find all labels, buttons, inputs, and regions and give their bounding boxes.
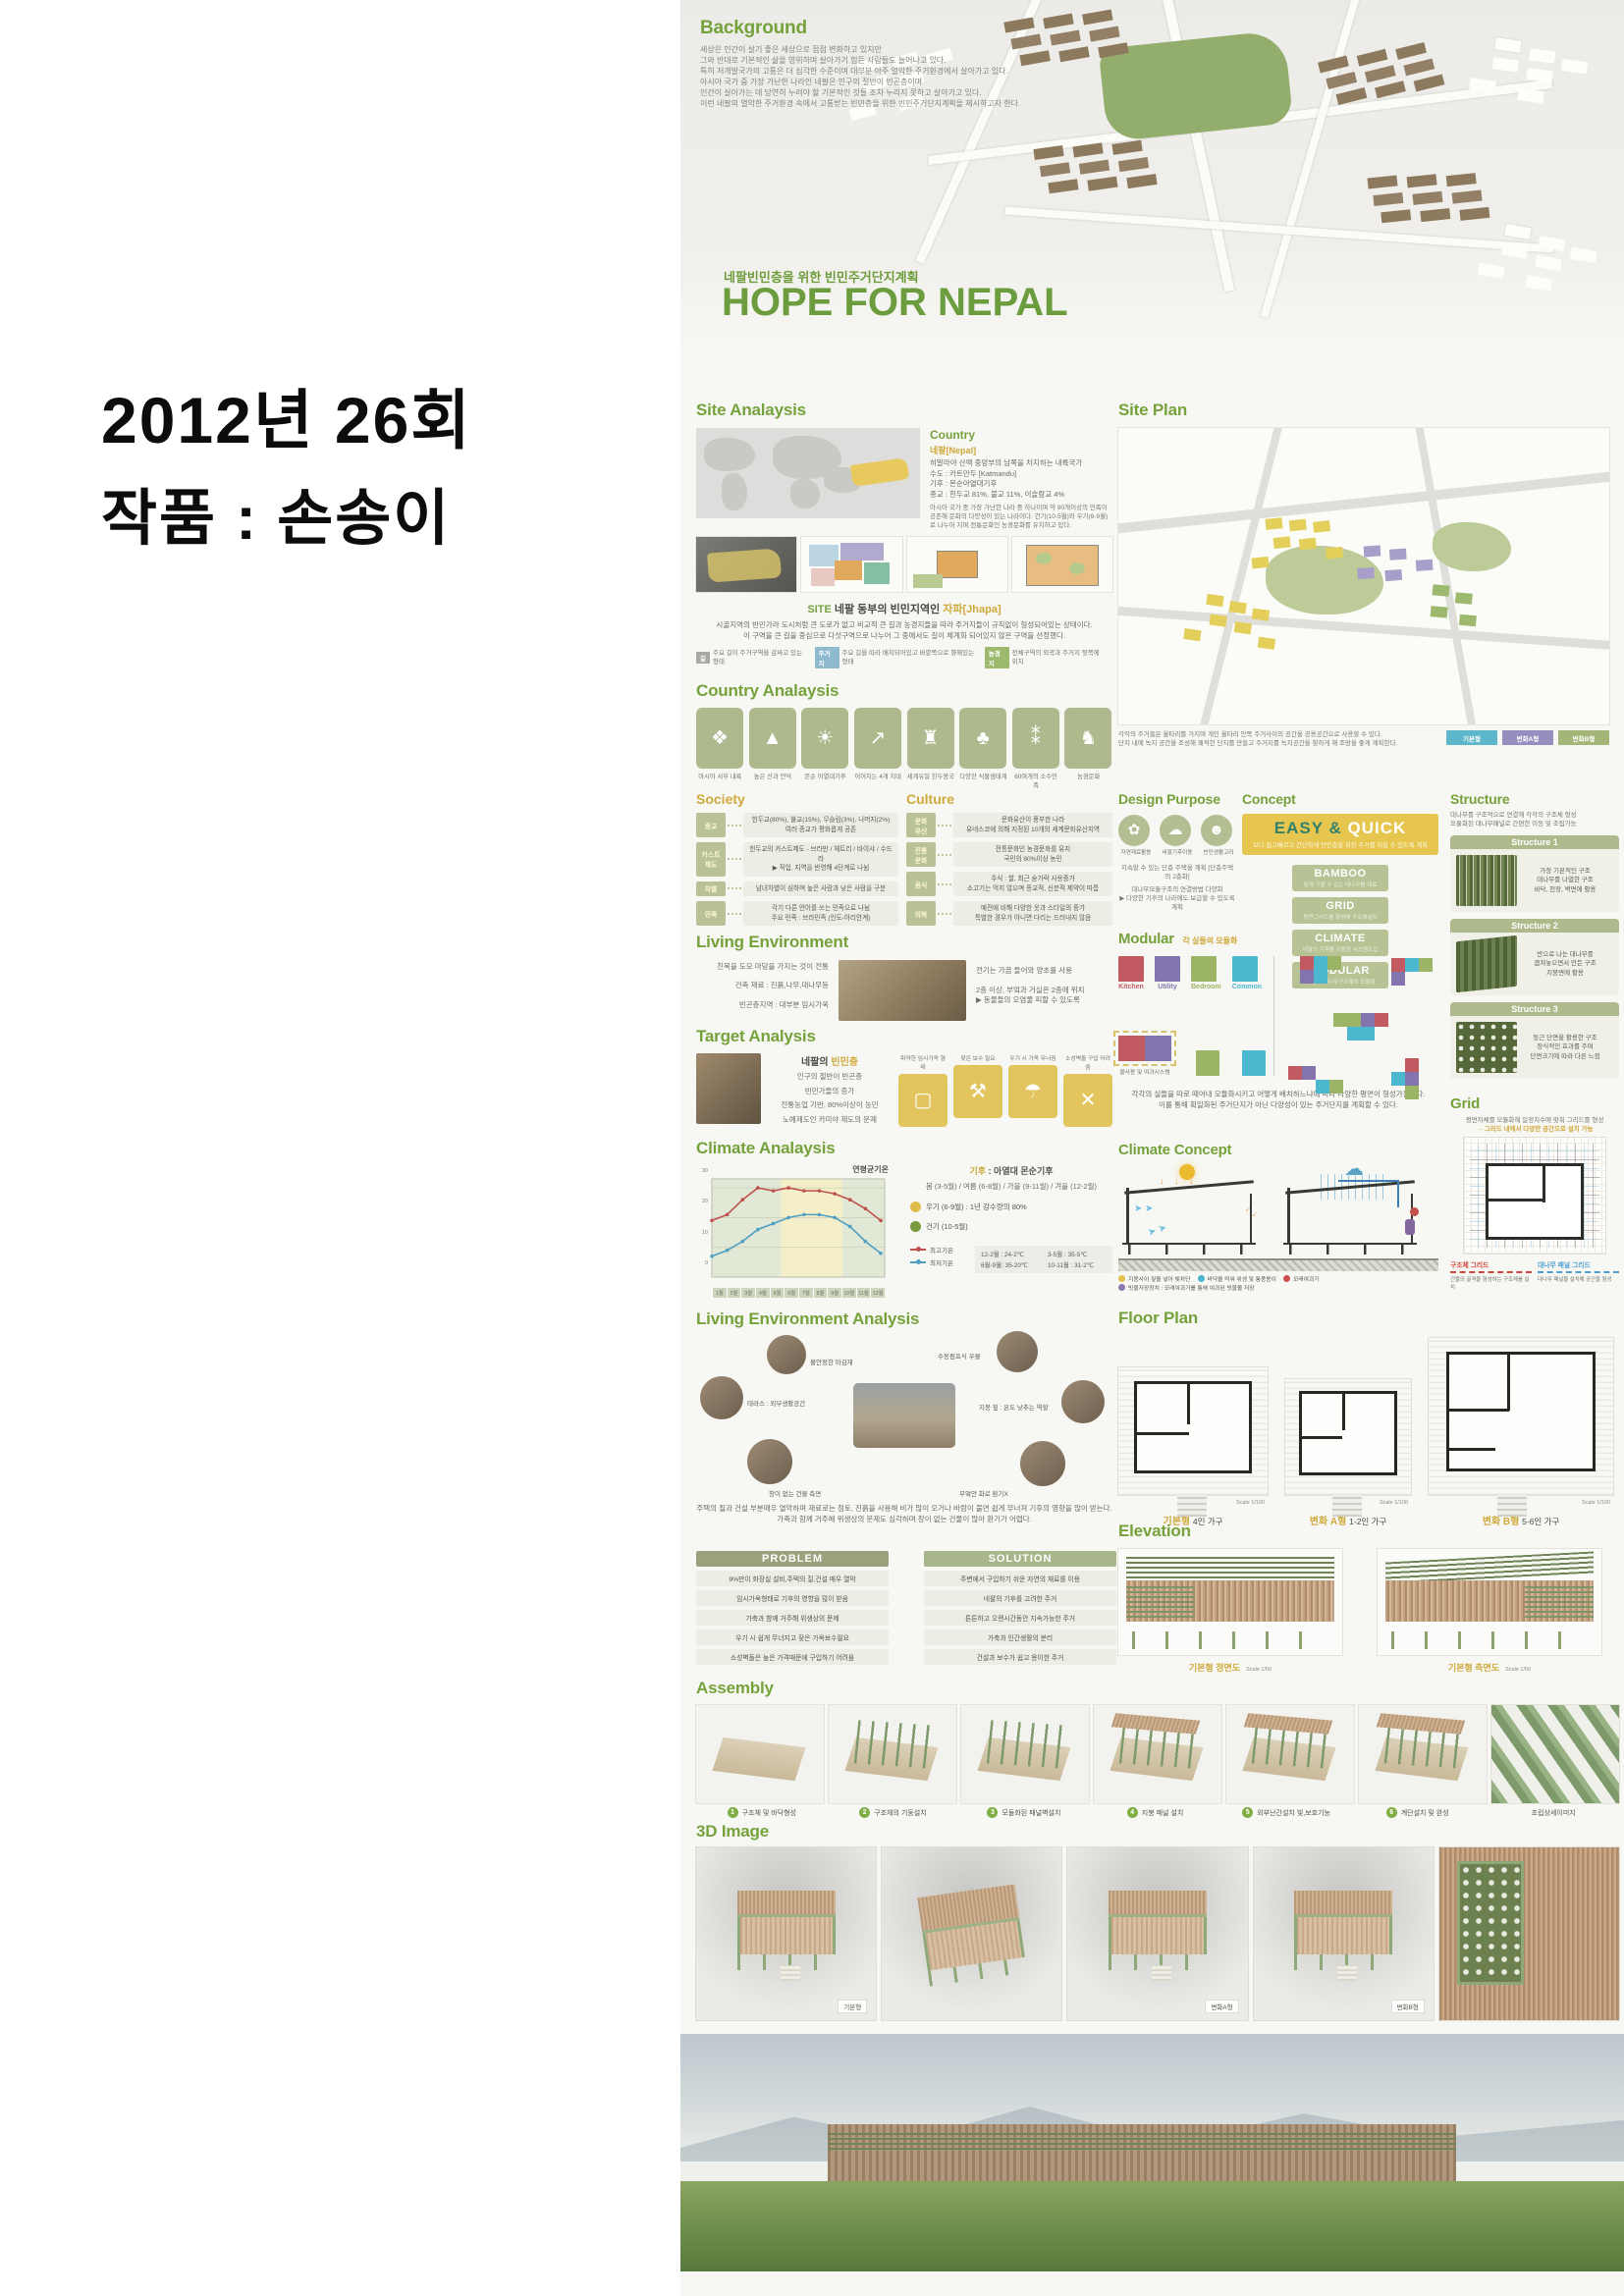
structure-heading: Structure <box>1450 791 1619 807</box>
structure-box-3-text: 둥근 단면을 활용한 구조 장식적인 효과를 주며 단면크기에 따라 다른 느낌 <box>1517 1034 1613 1062</box>
elevation-section: Elevation 기본형 정면도Scale 1/50 기본형 측면도Scale… <box>1118 1522 1619 1674</box>
variant-b-houses <box>1433 584 1450 596</box>
country-info: Country 네팔[Nepal] 히말라야 산맥 중앙부의 남쪽을 차지하는 … <box>920 428 1112 530</box>
poor-life-icon: ☻ <box>1201 815 1232 846</box>
country-analysis-item: ☀ 몬순 아열대기후 <box>801 708 849 789</box>
assembly-step-label: 모듈화된 패널벽설치 <box>1001 1808 1060 1818</box>
windowless-photo <box>747 1439 792 1484</box>
concept-box: GRID 평면그리드를 형성해 구조체설치 <box>1292 897 1388 924</box>
design-purpose-section: Design Purpose ✿ 자연재료활용 ☁ 네팔기후이용 ☻ 빈민생활고… <box>1118 791 1236 912</box>
ethnic-groups-icon: ⁑ <box>1012 708 1059 769</box>
roof-view-render <box>882 1847 1061 2020</box>
final-render-photo <box>680 2034 1624 2271</box>
living-env-analysis-diagram: 불안정한 마감재 테라스 : 외부생활공간 창이 없는 건물 측면 수동펌프식 … <box>696 1329 1112 1496</box>
legend-dot <box>1118 1284 1125 1291</box>
gutter-pipe <box>1338 1180 1399 1207</box>
target-analysis-list: 네팔의 빈민층 인구의 절반이 빈곤층빈민가들의 증가전통농업 기반, 80%이… <box>761 1053 898 1127</box>
assembly-step-label: 지붕 패널 설치 <box>1142 1808 1184 1818</box>
design-purpose-item: ☻ 빈민생활고려 <box>1201 815 1236 856</box>
room-label: Bedroom <box>1191 984 1221 990</box>
background-line: 세상은 인간이 살기 좋은 세상으로 점점 변화하고 있지만 <box>700 44 1024 55</box>
site-plan-caption: 각각의 주거들은 울타리를 가지며 개인 울타리 안쪽 주거사이의 공간을 공용… <box>1118 730 1441 748</box>
assembly-step-number: 3 <box>987 1807 998 1818</box>
concept-box: BAMBOO 쉽게 구할 수 있는 대나무를 재료 <box>1292 865 1388 891</box>
living-env-analysis-section: Living Environment Analysis 불안정한 마감재 테라스… <box>696 1309 1112 1547</box>
target-tile-label: 잦은 보수 필요 <box>953 1053 1002 1062</box>
three-d-section: 3D Image 기본형 변화A형 변화B형 <box>696 1822 1619 2020</box>
month-tick: 10월 <box>841 1288 856 1298</box>
bamboo-panel-image <box>1456 855 1517 906</box>
basic-type-houses <box>1265 517 1282 530</box>
legend-text: 주요 길이 주거구역을 감싸고 있는 형태 <box>713 649 809 667</box>
plan-stairs <box>1332 1495 1362 1517</box>
render-park <box>1099 29 1294 141</box>
rainy-collapse-icon: ☂ <box>1008 1065 1057 1118</box>
country-analysis-label: 아시아 서부 내륙 <box>696 772 744 780</box>
country-analysis-label: 농경문화 <box>1064 772 1112 780</box>
month-tick: 1월 <box>712 1288 727 1298</box>
target-tile: 소성벽돌 구입 어려움 ✕ <box>1063 1053 1112 1127</box>
culture-text: 예전에 비해 다양한 옷과 스타일의 증가 특별한 경우가 아니면 다리는 드러… <box>953 901 1112 926</box>
month-tick: 6월 <box>784 1288 798 1298</box>
site-title: 네팔 동부의 빈민지역인 <box>835 604 940 615</box>
modular-heading: Modular <box>1118 931 1174 947</box>
zone-detail-thumb <box>1012 537 1112 592</box>
structure-box-2-title: Structure 2 <box>1450 919 1619 933</box>
variant-b-plan-drawing: Scale 1/100 <box>1429 1338 1613 1495</box>
room-swatch <box>1118 956 1144 982</box>
floor-plan-row: Scale 1/100 기본형 4인 가구 Scale 1/100 변화 A형 … <box>1118 1338 1619 1527</box>
target-tile: 잦은 보수 필요 ⚒ <box>953 1053 1002 1127</box>
society-text: 힌두교(80%), 불교(15%), 무슬림(3%), 나머지(2%) 여러 종… <box>743 813 898 837</box>
legend-dot <box>1198 1275 1205 1282</box>
structure-box-3: Structure 3 둥근 단면을 활용한 구조 장식적인 효과를 주며 단면… <box>1450 1002 1619 1079</box>
assembly-captions: 1 구조체 및 바닥형성 2 구조체의 기둥설치 3 모듈화된 패널벽설치 4 … <box>696 1807 1619 1818</box>
world-map-image <box>696 428 920 518</box>
legend-text: 주요 길을 따라 배치되어있고 바깥쪽으로 향해있는 형태 <box>842 649 979 667</box>
target-item: 노예제도인 카미야 제도의 문제 <box>767 1115 893 1126</box>
temperature-cell: 6월-9월: 35-20℃ <box>981 1260 1040 1269</box>
assembly-step5-image <box>1226 1705 1354 1803</box>
structure-section: Structure 대나무를 구조적으로 연결해 각각의 구조체 형성 모듈화된… <box>1450 791 1619 1079</box>
modular-caption: 각각의 실들을 따로 떼어내 모듈화시키고 어떻게 배치하느냐에 따라 다양한 … <box>1118 1090 1438 1110</box>
climate-analysis-section: Climate Analaysis 연평균기온 30 20 10 0 1월2월3… <box>696 1139 1112 1298</box>
country-analysis-label: 세계유일 힌두왕국 <box>907 772 955 780</box>
target-tile: 취약한 임시가옥 형태 ▢ <box>898 1053 947 1127</box>
three-d-heading: 3D Image <box>696 1822 1619 1842</box>
solution-item: 주변에서 구입하기 쉬운 자연의 재료를 이용 <box>924 1571 1116 1586</box>
temperature-cell: 12-2월 : 24-2℃ <box>981 1250 1040 1258</box>
structure-intro: 대나무를 구조적으로 연결해 각각의 구조체 형성 모듈화된 대나무패널로 간편… <box>1450 811 1619 828</box>
site-analysis-heading: Site Analaysis <box>696 400 1112 420</box>
temperature-cell: 10-11월 : 31-2℃ <box>1048 1260 1107 1269</box>
target-analysis-section: Target Analysis 네팔의 빈민층 인구의 절반이 빈곤층빈민가들의… <box>696 1027 1112 1127</box>
basic-type-houses <box>1206 594 1223 607</box>
country-analysis-item: ❖ 아시아 서부 내륙 <box>696 708 744 789</box>
problem-header: PROBLEM <box>696 1551 889 1567</box>
modular-body: Kitchen Utility Bedroom Common <box>1118 956 1438 1076</box>
site-map-thumbnails <box>696 537 1112 592</box>
wind-arrows: ➤ ➤ <box>1134 1203 1154 1214</box>
problem-item: 9%만이 화장실 설비,주택의 질,건설 매우 열악 <box>696 1571 889 1586</box>
living-environment-section: Living Environment 친목을 도모 마당을 가지는 것이 전통건… <box>696 933 1112 1021</box>
grid-line1: 평면자체를 모듈화해 일정치수에 맞춰 그리드를 형성 <box>1450 1116 1619 1125</box>
repair-hammer-icon: ⚒ <box>953 1065 1002 1118</box>
country-analysis-label: 높은 산과 언덕 <box>749 772 797 780</box>
straw-roof-photo <box>1061 1380 1105 1423</box>
concept-banner: EASY & QUICK 보다 쉽고빠르고 간단하게 빈민층을 위한 주거를 지… <box>1242 814 1438 855</box>
assembly-step-caption: 2 구조체의 기둥설치 <box>828 1807 959 1818</box>
design-purpose-item: ☁ 네팔기후이용 <box>1160 815 1195 856</box>
sunlight-arrows: ↓↓ <box>1244 1203 1263 1222</box>
culture-text: 전통문화인 농경문화를 유지 국민의 80%이상 농민 <box>953 842 1112 867</box>
design-purpose-line1: 지속할 수 있는 단층 주택을 계획 [단층주택의 2층화] <box>1118 864 1236 881</box>
room-label: Kitchen <box>1118 984 1144 990</box>
structure-box-3-title: Structure 3 <box>1450 1002 1619 1016</box>
modular-room: Bedroom <box>1191 956 1221 990</box>
plant-ecosystem-icon: ♣ <box>959 708 1006 769</box>
ground-strip <box>1118 1258 1438 1271</box>
elevation-heading: Elevation <box>1118 1522 1619 1541</box>
design-purpose-item: ✿ 자연재료활용 <box>1118 815 1154 856</box>
slum-people-photo <box>696 1053 761 1124</box>
grid-legend-panel: 대나무 패널 그리드 대나무 패널을 설치해 공간을 형성 <box>1538 1259 1619 1291</box>
chart-legend: 최고기온 최저기온 <box>910 1242 975 1267</box>
solution-header: SOLUTION <box>924 1551 1116 1567</box>
competition-title-line1: 2012년 26회 <box>101 381 651 459</box>
climate-concept-legend: 지붕사이 짚을 넣어 빛차단 바닥을 띄워 위생 및 통풍용이 모래여과기 빗물… <box>1118 1274 1438 1292</box>
solution-item: 네팔의 기후를 고려한 주거 <box>924 1590 1116 1606</box>
structure-box-1-title: Structure 1 <box>1450 835 1619 849</box>
climate-concept-legend-item: 바닥을 띄워 위생 및 통풍용이 <box>1198 1274 1276 1283</box>
solution-column: SOLUTION 주변에서 구입하기 쉬운 자연의 재료를 이용네팔의 기후를 … <box>924 1551 1116 1665</box>
month-tick: 7월 <box>798 1288 813 1298</box>
site-plan-legend: 기본형변화A형변화B형 <box>1441 730 1609 745</box>
grid-heading: Grid <box>1450 1095 1619 1112</box>
country-analysis-tiles: ❖ 아시아 서부 내륙 ▲ 높은 산과 언덕 ☀ 몬순 아열대기후 ↗ 이어지는… <box>696 708 1112 789</box>
living-env-analysis-heading: Living Environment Analysis <box>696 1309 1112 1329</box>
country-analysis-item: ↗ 이어지는 4개 지대 <box>854 708 902 789</box>
background-line: 이런 네팔의 열악한 주거환경 속에서 고통받는 빈민층을 위한 빈민주거단지계… <box>700 98 1024 109</box>
target-item: 빈민가들의 증가 <box>767 1087 893 1097</box>
site-desc2: 이 구역을 큰 길을 중심으로 다섯구역으로 나누어 그 중에서도 길이 체계화… <box>696 631 1112 642</box>
modular-room: Utility <box>1155 956 1180 990</box>
variant-b-render: 변화B형 <box>1254 1847 1434 2020</box>
legend-dot <box>1118 1275 1125 1282</box>
site-name: 자파[Jhapa] <box>943 604 1001 615</box>
culture-row: 음식 주식 : 쌀, 최근 숟가락 사용증가 소고기는 먹지 않으며 종교적, … <box>906 872 1112 896</box>
month-tick: 5월 <box>770 1288 785 1298</box>
structure-box-1-text: 가장 기본적인 구조 대나무를 나열한 구조 바닥, 천장, 벽면에 활용 <box>1517 867 1613 895</box>
render-label: 변화A형 <box>1206 2001 1237 2012</box>
site-legend-item: 길 주요 길이 주거구역을 감싸고 있는 형태 <box>696 649 809 667</box>
assembly-extra-caption: 조립상세이미지 <box>1488 1807 1619 1818</box>
concept-box-name: GRID <box>1294 900 1386 912</box>
country-analysis-item: ♞ 농경문화 <box>1064 708 1112 789</box>
site-analysis-top: Country 네팔[Nepal] 히말라야 산맥 중앙부의 남쪽을 차지하는 … <box>696 428 1112 530</box>
no-brick-icon: ✕ <box>1063 1074 1112 1127</box>
culture-text: 주식 : 쌀, 최근 숟가락 사용증가 소고기는 먹지 않으며 종교적, 신분적… <box>953 872 1112 896</box>
plan-stairs <box>1497 1495 1527 1517</box>
target-tile-label: 우기 시 가옥 무너짐 <box>1008 1053 1057 1062</box>
modular-rooms-block: Kitchen Utility Bedroom Common <box>1118 956 1266 1076</box>
target-item: 인구의 절반이 빈곤층 <box>767 1072 893 1083</box>
assembly-step4-image <box>1094 1705 1221 1803</box>
assembly-step-label: 외부난간설치 빛,보호기능 <box>1257 1808 1330 1818</box>
legend-chip: 주거지 <box>815 647 839 668</box>
structure-box-2: Structure 2 반으로 나눈 대나무를 겹쳐놓으면서 만든 구조 지붕면… <box>1450 919 1619 995</box>
design-purpose-line2: 대나무모듈구조의 연결방법 다양화 <box>1118 885 1236 894</box>
assembly-heading: Assembly <box>696 1679 1619 1698</box>
sand-filter <box>1410 1207 1419 1216</box>
society-text: 각기 다른 언어를 쓰는 민족으로 나뉨 주요 민족 : 브라민족 (인도-아리… <box>743 901 898 926</box>
background-block: Background 세상은 인간이 살기 좋은 세상으로 점점 변화하고 있지… <box>700 18 1024 109</box>
competition-title: 2012년 26회 작품 : 손송이 <box>101 381 651 558</box>
background-paragraph: 세상은 인간이 살기 좋은 세상으로 점점 변화하고 있지만그와 반대로 기본적… <box>700 44 1024 109</box>
assembly-images <box>696 1705 1619 1803</box>
assembly-step-label: 구조체의 기둥설치 <box>874 1808 926 1818</box>
living-environment-heading: Living Environment <box>696 933 1112 952</box>
elevation-row: 기본형 정면도Scale 1/50 기본형 측면도Scale 1/50 <box>1118 1549 1619 1674</box>
country-analysis-item: ⁑ 60여개의 소수민족 <box>1012 708 1060 789</box>
climate-analysis-heading: Climate Analaysis <box>696 1139 1112 1158</box>
society-heading: Society <box>696 791 898 807</box>
traditional-house-photo <box>839 960 966 1021</box>
concept-box-desc: 쉽게 구할 수 있는 대나무를 재료 <box>1294 881 1386 888</box>
monsoon-climate-icon: ☀ <box>801 708 848 769</box>
rainy-dot <box>910 1201 921 1212</box>
month-tick: 3월 <box>740 1288 755 1298</box>
side-elevation-drawing <box>1378 1549 1601 1655</box>
month-tick: 4월 <box>755 1288 770 1298</box>
society-text: 남녀차별이 심하며 높은 사람과 낮은 사람을 구분 <box>743 881 898 897</box>
site-plan-legend-chip: 변화A형 <box>1502 730 1553 745</box>
solution-item: 가축과 인간생활의 분리 <box>924 1629 1116 1645</box>
country-desc: 아시아 국가 중 가장 가난한 나라 중 하나이며 약 90개이상의 민족이 공… <box>930 504 1112 530</box>
assembly-step-number: 2 <box>859 1807 870 1818</box>
room-swatch <box>1191 956 1217 982</box>
site-analysis-section: Site Analaysis Country 네팔[Nepal] 히말라야 산맥… <box>696 400 1112 668</box>
target-tiles: 취약한 임시가옥 형태 ▢ 잦은 보수 필요 ⚒ 우기 시 가옥 무너짐 ☂ 소… <box>898 1053 1112 1127</box>
background-line: 특히 저개발국가의 고통은 더 심각한 수준이며 대부분 아주 열악한 주거환경… <box>700 66 1024 77</box>
country-facts: 히말라야 산맥 중앙부의 남쪽을 차지하는 내륙국가 수도 : 카트만두 [Ka… <box>930 458 1112 500</box>
water-module: 물사용 및 여과시스템 <box>1118 1036 1171 1076</box>
solution-item: 튼튼하고 오랜시간동안 지속가능한 주거 <box>924 1610 1116 1626</box>
climate-concept-legend-item: 지붕사이 짚을 넣어 빛차단 <box>1118 1274 1191 1283</box>
nepal-shape <box>850 457 909 487</box>
problem-solution-section: PROBLEM 9%만이 화장실 설비,주택의 질,건설 매우 열악임시가옥형태… <box>696 1551 1116 1665</box>
concept-box-name: BAMBOO <box>1294 868 1386 880</box>
living-environment-left: 친목을 도모 마당을 가지는 것이 전통건축 재료 : 진흙,나무,대나무등빈곤… <box>696 962 829 1020</box>
floor-plan-section: Floor Plan Scale 1/100 기본형 4인 가구 <box>1118 1308 1619 1527</box>
country-analysis-label: 60여개의 소수민족 <box>1012 772 1060 789</box>
room-swatch <box>1232 956 1258 982</box>
assembly-step-label: 구조체 및 바닥형성 <box>742 1808 796 1818</box>
target-subject: 네팔의 <box>801 1057 829 1068</box>
society-row: 카스트 제도 힌두교의 카스트제도 - 브라만 / 체트리 / 바이샤 / 수드… <box>696 842 898 877</box>
green-space <box>1433 522 1511 571</box>
month-tick: 11월 <box>856 1288 871 1298</box>
grid-line2: → 그리드 내에서 다양한 공간으로 설치 가능 <box>1450 1125 1619 1134</box>
background-line: 그와 반대로 기본적인 삶을 영위하며 살아가기 힘든 사람들도 늘어나고 있다… <box>700 55 1024 66</box>
society-tag: 카스트 제도 <box>696 842 726 877</box>
background-line: 인간이 살아가는 데 당연히 누려야 할 기본적인 것들 조차 누리지 못하고 … <box>700 87 1024 98</box>
society-rows: 종교 힌두교(80%), 불교(15%), 무슬림(3%), 나머지(2%) 여… <box>696 813 898 926</box>
natural-material-icon: ✿ <box>1118 815 1150 846</box>
living-environment-body: 친목을 도모 마당을 가지는 것이 전통건축 재료 : 진흙,나무,대나무등빈곤… <box>696 960 1112 1021</box>
culture-rows: 문화 유산 문화유산이 풍부한 나라 유네스코에 의해 지정된 10개의 세계문… <box>906 813 1112 926</box>
problem-item: 가축과 함께 거주해 위생상의 문제 <box>696 1610 889 1626</box>
floor-plan-variant-b: Scale 1/100 변화 B형 5-6인 가구 <box>1429 1338 1613 1527</box>
well-photo <box>997 1331 1038 1372</box>
culture-tag: 문화 유산 <box>906 813 936 837</box>
site-plan-section: Site Plan 각각의 주거들은 울타리를 가지며 개인 울타리 안쪽 주거… <box>1118 400 1609 748</box>
design-purpose-label: 빈민생활고려 <box>1201 848 1236 856</box>
terrace-photo <box>700 1376 743 1419</box>
modular-room: Kitchen <box>1118 956 1144 990</box>
site-plan-legend-chip: 변화B형 <box>1558 730 1609 745</box>
modular-divider <box>1273 956 1274 1076</box>
problem-item: 우기 시 쉽게 무너지고 잦은 가옥보수필요 <box>696 1629 889 1645</box>
climate-chart-block: 연평균기온 30 20 10 0 1월2월3월4월5월6월7월8월9월10월11… <box>696 1164 896 1298</box>
assembly-step-label: 계단설치 및 완성 <box>1401 1808 1449 1818</box>
society-tag: 종교 <box>696 813 726 837</box>
assembly-step-caption: 1 구조체 및 바닥형성 <box>696 1807 828 1818</box>
background-heading: Background <box>700 18 1024 39</box>
country-analysis-item: ▲ 높은 산과 언덕 <box>749 708 797 789</box>
living-environment-right: 전기는 가끔 들어와 양초를 사용2층 이상, 부엌과 거실은 2층에 위치 ▶… <box>976 966 1112 1015</box>
background-line: 아시아 국가 중 가장 가난한 나라인 네팔은 인구의 절반이 빈곤층이며 <box>700 77 1024 87</box>
design-purpose-label: 자연재료활용 <box>1118 848 1154 856</box>
site-legend-item: 주거지 주요 길을 따라 배치되어있고 바깥쪽으로 향해있는 형태 <box>815 647 979 668</box>
country-analysis-item: ♣ 다양한 식물생태계 <box>959 708 1007 789</box>
legend-min: 최저기온 <box>910 1257 975 1267</box>
climate-chart <box>696 1175 889 1283</box>
culture-row: 전통 문화 전통문화인 농경문화를 유지 국민의 80%이상 농민 <box>906 842 1112 867</box>
village-photo <box>853 1383 955 1448</box>
concept-box-desc: 평면그리드를 형성해 구조체설치 <box>1294 913 1386 921</box>
temperature-table: 12-2월 : 24-2℃3-5월 : 35-5℃6월-9월: 35-20℃10… <box>975 1246 1112 1273</box>
problem-item: 소성벽돌은 높은 가격때문에 구입하기 어려움 <box>696 1649 889 1665</box>
culture-text: 문화유산이 풍부한 나라 유네스코에 의해 지정된 10개의 세계문화유산지역 <box>953 813 1112 837</box>
target-tile-label: 소성벽돌 구입 어려움 <box>1063 1053 1112 1071</box>
concept-banner-title: EASY & QUICK <box>1244 819 1436 838</box>
assembly-step-number: 5 <box>1242 1807 1253 1818</box>
variant-a-plan-drawing: Scale 1/100 <box>1285 1379 1411 1495</box>
page: 2012년 26회 작품 : 손송이 Background <box>0 0 1624 2296</box>
assembly-step-number: 6 <box>1386 1807 1397 1818</box>
society-text: 힌두교의 카스트제도 - 브라만 / 체트리 / 바이샤 / 수드라 ▶ 직업,… <box>743 842 898 877</box>
country-analysis-label: 몬순 아열대기후 <box>801 772 849 780</box>
finish-material-photo <box>767 1335 806 1374</box>
front-elevation: 기본형 정면도Scale 1/50 <box>1118 1549 1342 1674</box>
room-swatch <box>1155 956 1180 982</box>
living-environment-item: 빈곤층지역 : 대부분 임시가옥 <box>696 1000 829 1011</box>
climate-concept-legend-item: 빗물저장장치 : 모래여과기를 통해 여과된 빗물을 저장 <box>1118 1283 1255 1292</box>
target-item: 전통농업 기반, 80%이상이 농민 <box>767 1100 893 1111</box>
target-analysis-heading: Target Analysis <box>696 1027 1112 1046</box>
month-tick: 2월 <box>727 1288 741 1298</box>
structure-box-2-text: 반으로 나눈 대나무를 겹쳐놓으면서 만든 구조 지붕면에 활용 <box>1517 950 1613 979</box>
grid-plan-image <box>1464 1138 1605 1254</box>
climate-concept-heading: Climate Concept <box>1118 1142 1438 1158</box>
side-elevation: 기본형 측면도Scale 1/50 <box>1378 1549 1601 1674</box>
problem-item: 임시가옥형태로 기후의 영향을 많이 받음 <box>696 1590 889 1606</box>
basic-plan-drawing: Scale 1/100 <box>1118 1367 1268 1495</box>
rainy-season: 우기 (6-9월) : 1년 강수량의 80% <box>910 1201 1112 1212</box>
culture-heading: Culture <box>906 791 1112 807</box>
legend-chip: 길 <box>696 652 710 664</box>
culture-tag: 음식 <box>906 872 936 896</box>
lawn <box>680 2181 1624 2271</box>
plan-stairs <box>1177 1495 1207 1517</box>
site-label: SITE <box>807 604 831 615</box>
chart-x-axis: 1월2월3월4월5월6월7월8월9월10월11월12월 <box>712 1288 885 1298</box>
asia-inland-icon: ❖ <box>696 708 743 769</box>
variant-a-houses <box>1364 545 1381 557</box>
site-line: SITE 네팔 동부의 빈민지역인 자파[Jhapa] <box>696 601 1112 616</box>
month-tick: 12월 <box>870 1288 885 1298</box>
month-tick: 8월 <box>813 1288 828 1298</box>
culture-section: Culture 문화 유산 문화유산이 풍부한 나라 유네스코에 의해 지정된 … <box>906 791 1112 931</box>
climate-analysis-body: 연평균기온 30 20 10 0 1월2월3월4월5월6월7월8월9월10월11… <box>696 1164 1112 1298</box>
three-d-row: 기본형 변화A형 변화B형 <box>696 1847 1619 2020</box>
climate-label: 기후 <box>969 1166 986 1176</box>
floor-plan-variant-a: Scale 1/100 변화 A형 1-2인 가구 <box>1285 1379 1411 1527</box>
assembly-step-caption: 6 계단설치 및 완성 <box>1352 1807 1484 1818</box>
assembly-step-caption: 3 모듈화된 패널벽설치 <box>958 1807 1090 1818</box>
country-analysis-item: ♜ 세계유일 힌두왕국 <box>907 708 955 789</box>
site-plan-legend-chip: 기본형 <box>1446 730 1497 745</box>
target-subject-accent: 빈민층 <box>831 1057 858 1068</box>
assembly-step-caption: 5 외부난간설치 빛,보호기능 <box>1220 1807 1352 1818</box>
design-purpose-label: 네팔기후이용 <box>1160 848 1195 856</box>
grid-section: Grid 평면자체를 모듈화해 일정치수에 맞춰 그리드를 형성 → 그리드 내… <box>1450 1095 1619 1291</box>
month-tick: 9월 <box>827 1288 841 1298</box>
assembly-step-caption: 4 지붕 패널 설치 <box>1090 1807 1221 1818</box>
living-env-analysis-paragraph: 주택의 질과 건설 부분매우 열악하며 재료로는 점토, 진흙을 사용해 비가 … <box>696 1504 1112 1524</box>
climate-type: : 아열대 몬순기후 <box>989 1166 1054 1176</box>
country-analysis-heading: Country Analaysis <box>696 681 1112 701</box>
society-row: 민족 각기 다른 언어를 쓰는 민족으로 나뉨 주요 민족 : 브라민족 (인도… <box>696 901 898 926</box>
problem-column: PROBLEM 9%만이 화장실 설비,주택의 질,건설 매우 열악임시가옥형태… <box>696 1551 889 1665</box>
four-zones-icon: ↗ <box>854 708 901 769</box>
satellite-thumb <box>696 537 796 592</box>
assembly-section: Assembly 1 구조체 및 바닥형성 2 구조체의 기둥설치 <box>696 1679 1619 1818</box>
site-plan-map <box>1118 428 1609 724</box>
design-purpose-line3: ▶ 다양한 기후의 나라에도 보급할 수 있도록 계획 <box>1118 894 1236 912</box>
climate-facts: 기후 : 아열대 몬순기후 봄 (3-5월) / 여름 (6-8월) / 가을 … <box>896 1164 1112 1298</box>
culture-row: 문화 유산 문화유산이 풍부한 나라 유네스코에 의해 지정된 10개의 세계문… <box>906 813 1112 837</box>
target-tile-label: 취약한 임시가옥 형태 <box>898 1053 947 1071</box>
floor-plan-heading: Floor Plan <box>1118 1308 1619 1328</box>
design-purpose-heading: Design Purpose <box>1118 791 1236 807</box>
site-desc1: 시골지역의 빈민가라 도시처럼 큰 도로가 없고 비교적 큰 길과 농경지들을 … <box>696 620 1112 631</box>
design-purpose-icons: ✿ 자연재료활용 ☁ 네팔기후이용 ☻ 빈민생활고려 <box>1118 815 1236 856</box>
modular-subtitle: 각 실들의 모듈화 <box>1182 936 1237 945</box>
legend-max: 최고기온 <box>910 1245 975 1255</box>
country-name: 네팔[Nepal] <box>930 444 1112 456</box>
dry-dot <box>910 1221 921 1232</box>
rainwater-tank <box>1405 1219 1415 1235</box>
sun-ventilation-diagram: ↓ ↓ ↓ ➤ ➤ ➤ ➤ ↓↓ <box>1118 1164 1264 1258</box>
grid-legend-structure: 구조체 그리드 건물의 골격을 형성하는 구조체를 설치 <box>1450 1259 1532 1291</box>
modular-arrangements <box>1282 956 1438 1076</box>
assembly-step3-image <box>961 1705 1089 1803</box>
bedroom-module <box>1196 1050 1219 1076</box>
society-row: 차별 남녀차별이 심하며 높은 사람과 낮은 사람을 구분 <box>696 881 898 897</box>
front-elevation-drawing <box>1118 1549 1342 1655</box>
